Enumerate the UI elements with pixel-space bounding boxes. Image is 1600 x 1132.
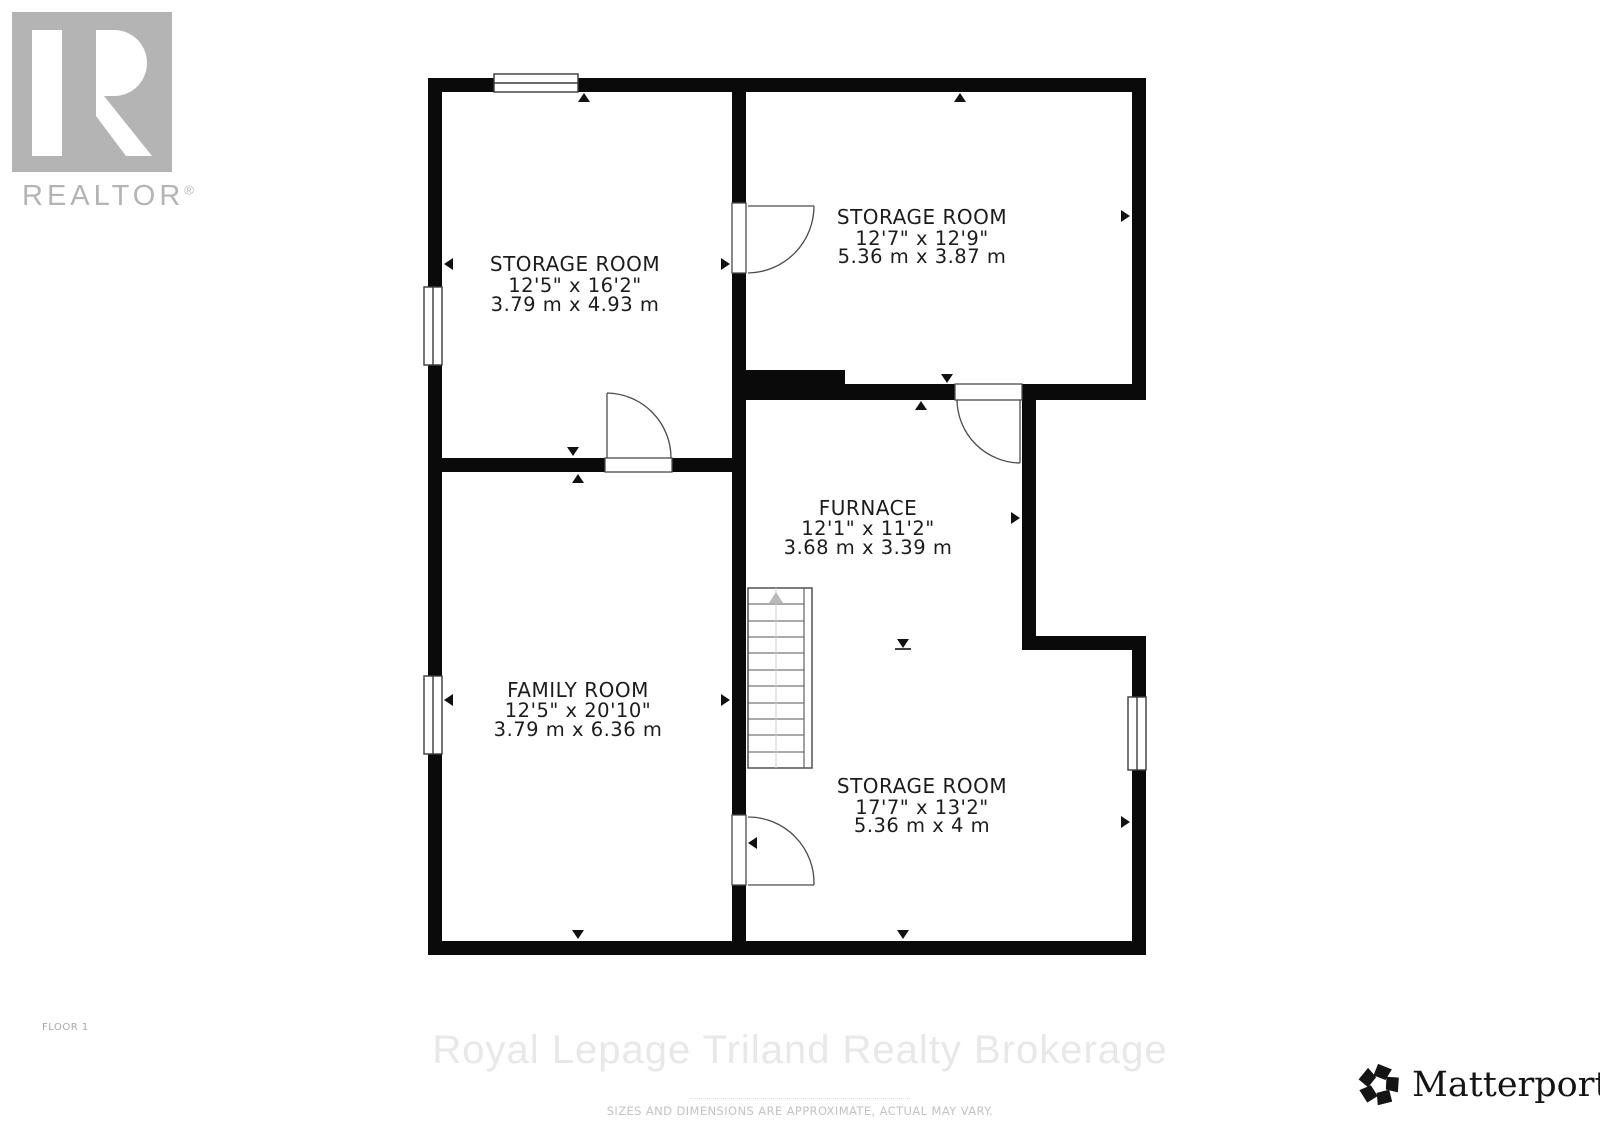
window-left-lower [424,676,442,754]
door-family-storage [732,815,814,885]
door-top-rooms [732,203,814,273]
window-right [1128,697,1146,770]
open-boundary-marker [895,639,911,649]
room-label-family-room: FAMILY ROOM 12'5" x 20'10" 3.79 m x 6.36… [494,678,663,741]
room-dim-metric: 3.68 m x 3.39 m [784,536,953,559]
room-name: STORAGE ROOM [837,205,1007,229]
door-furnace [955,384,1022,463]
room-name: STORAGE ROOM [837,774,1007,798]
room-dim-metric: 3.79 m x 4.93 m [491,293,660,316]
staircase [748,588,812,768]
window-left-upper [424,287,442,365]
matterport-pinwheel-icon [1356,1062,1402,1108]
room-name: STORAGE ROOM [490,252,660,276]
room-dim-metric: 5.36 m x 4 m [854,814,990,837]
room-label-storage-top-right: STORAGE ROOM 12'7" x 12'9" 5.36 m x 3.87… [837,205,1007,268]
room-dim-metric: 5.36 m x 3.87 m [838,245,1007,268]
disclaimer-text: SIZES AND DIMENSIONS ARE APPROXIMATE, AC… [607,1104,994,1118]
room-label-furnace: FURNACE 12'1" x 11'2" 3.68 m x 3.39 m [784,496,953,559]
room-label-storage-bottom: STORAGE ROOM 17'7" x 13'2" 5.36 m x 4 m [837,774,1007,837]
floor-label: FLOOR 1 [42,1022,89,1033]
floor-plan: STORAGE ROOM 12'5" x 16'2" 3.79 m x 4.93… [0,0,1600,1132]
matterport-logo: Matterport® [1356,1062,1600,1108]
walls [428,78,1146,955]
brokerage-watermark: Royal Lepage Triland Realty Brokerage [432,1028,1167,1073]
window-top [494,74,578,92]
room-dim-metric: 3.79 m x 6.36 m [494,718,663,741]
faint-fine-print-line [690,1098,910,1099]
room-label-storage-top-left: STORAGE ROOM 12'5" x 16'2" 3.79 m x 4.93… [490,252,660,316]
door-storage-family [605,393,672,472]
matterport-wordmark: Matterport® [1412,1068,1600,1103]
